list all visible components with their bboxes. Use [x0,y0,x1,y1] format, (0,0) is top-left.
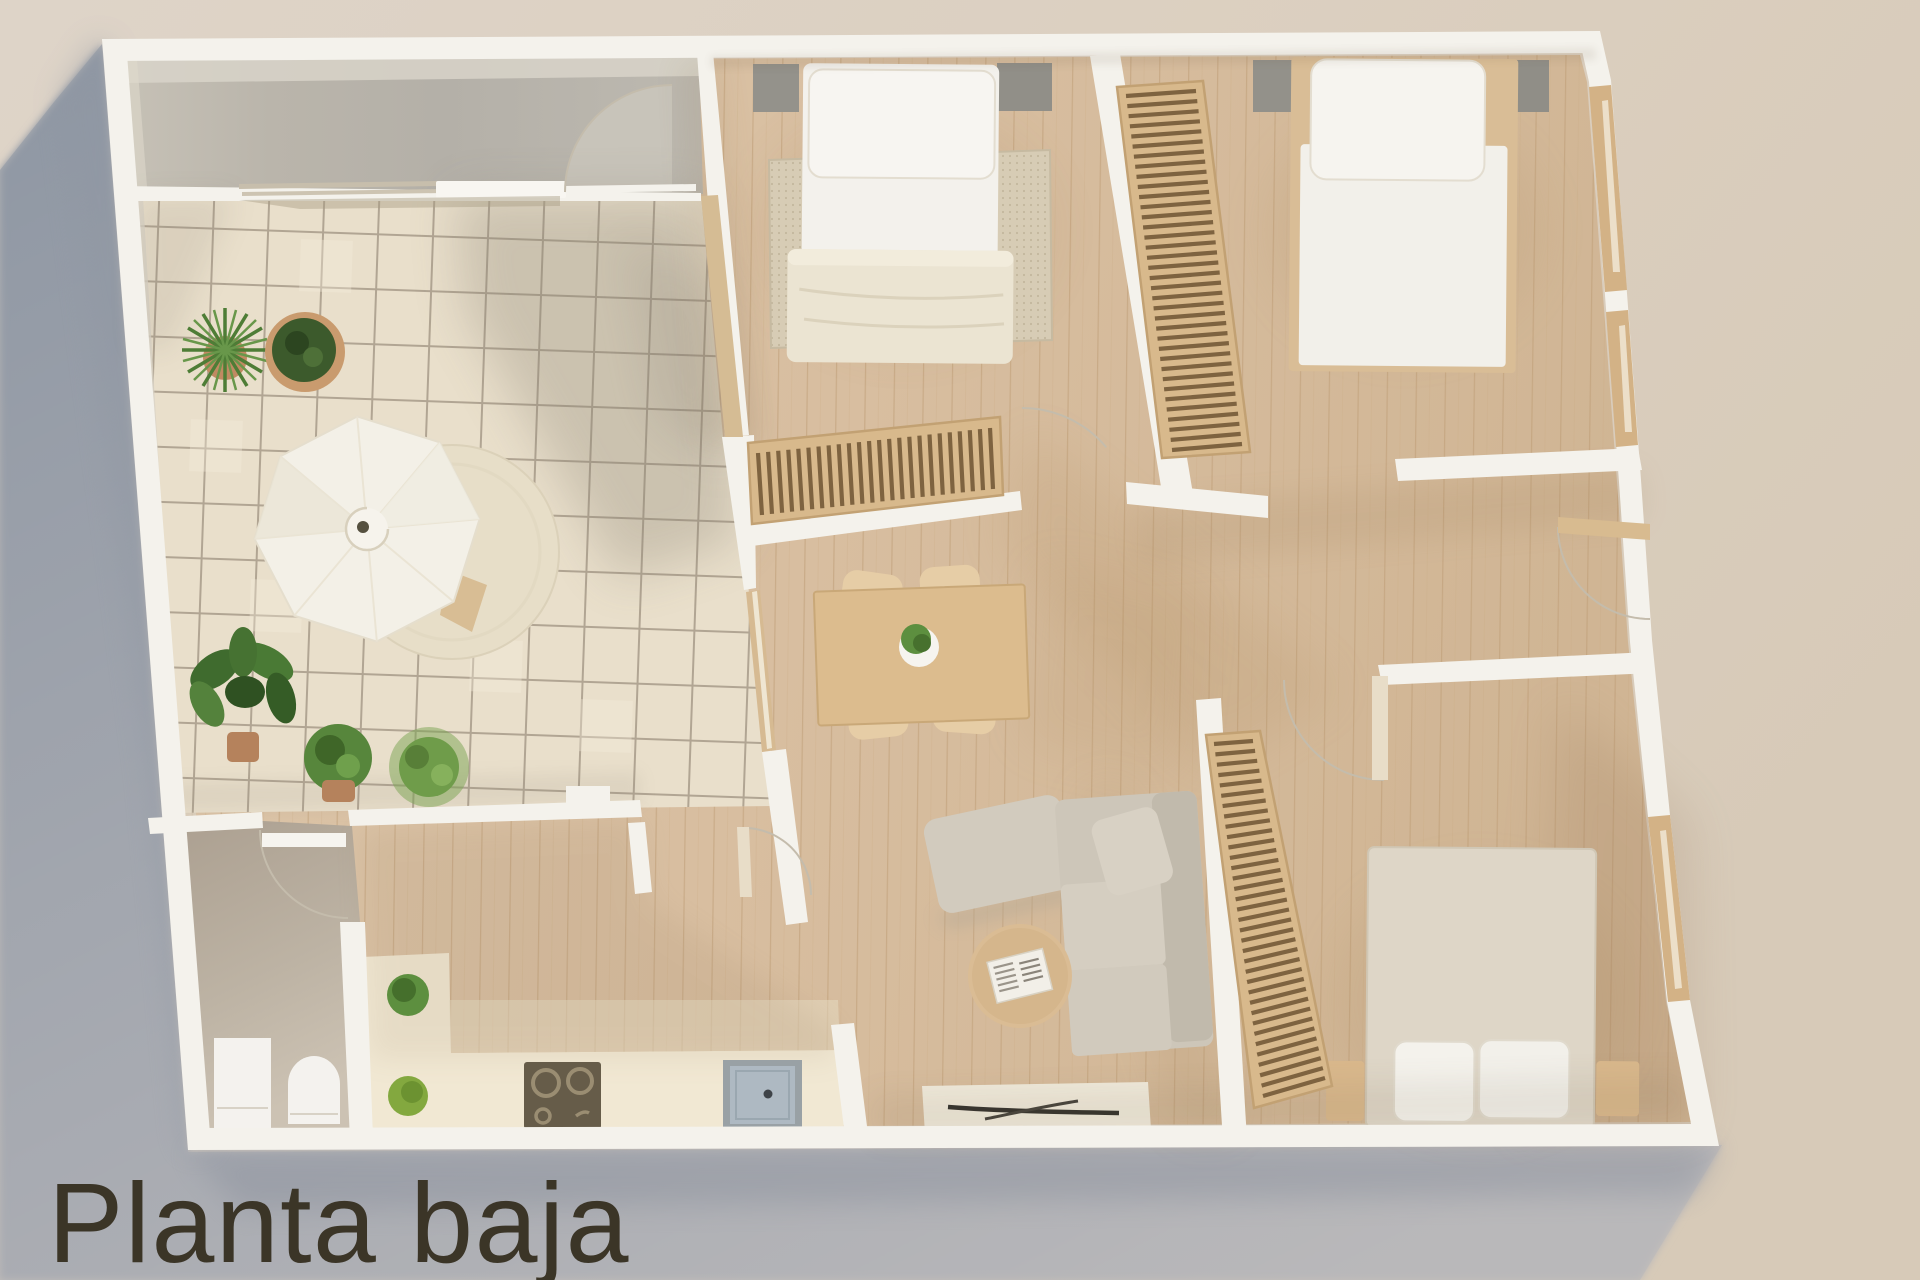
svg-text:Planta baja: Planta baja [48,1160,630,1280]
